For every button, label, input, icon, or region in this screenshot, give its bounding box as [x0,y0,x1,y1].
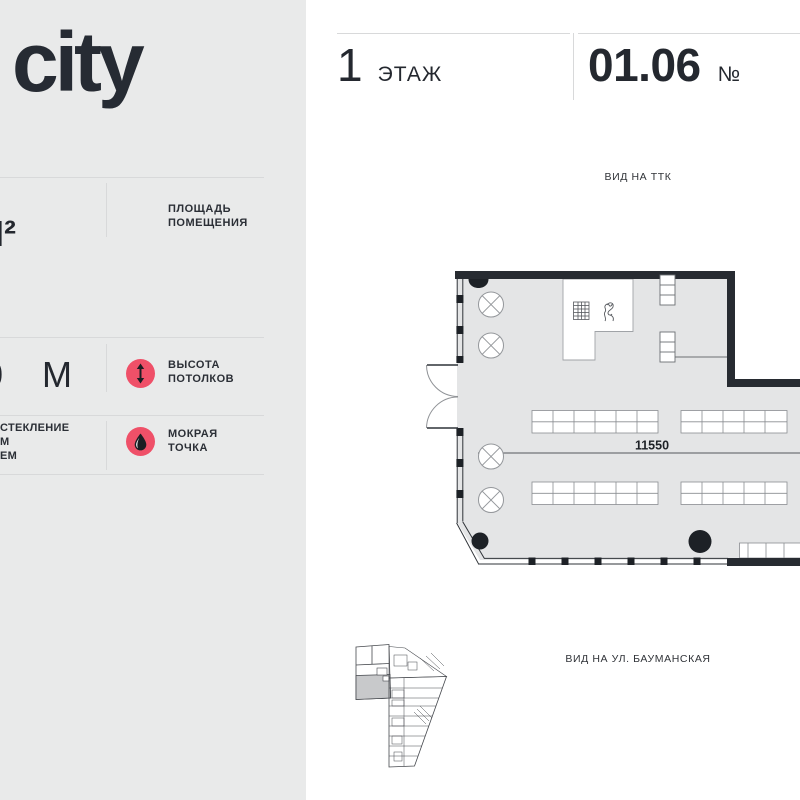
dimension-label: 11550 [635,439,669,453]
entrance-door [427,365,459,428]
panel-grid-icon [574,302,590,320]
floor-plan-drawing: 11550 [0,0,800,800]
minimap [356,645,447,768]
